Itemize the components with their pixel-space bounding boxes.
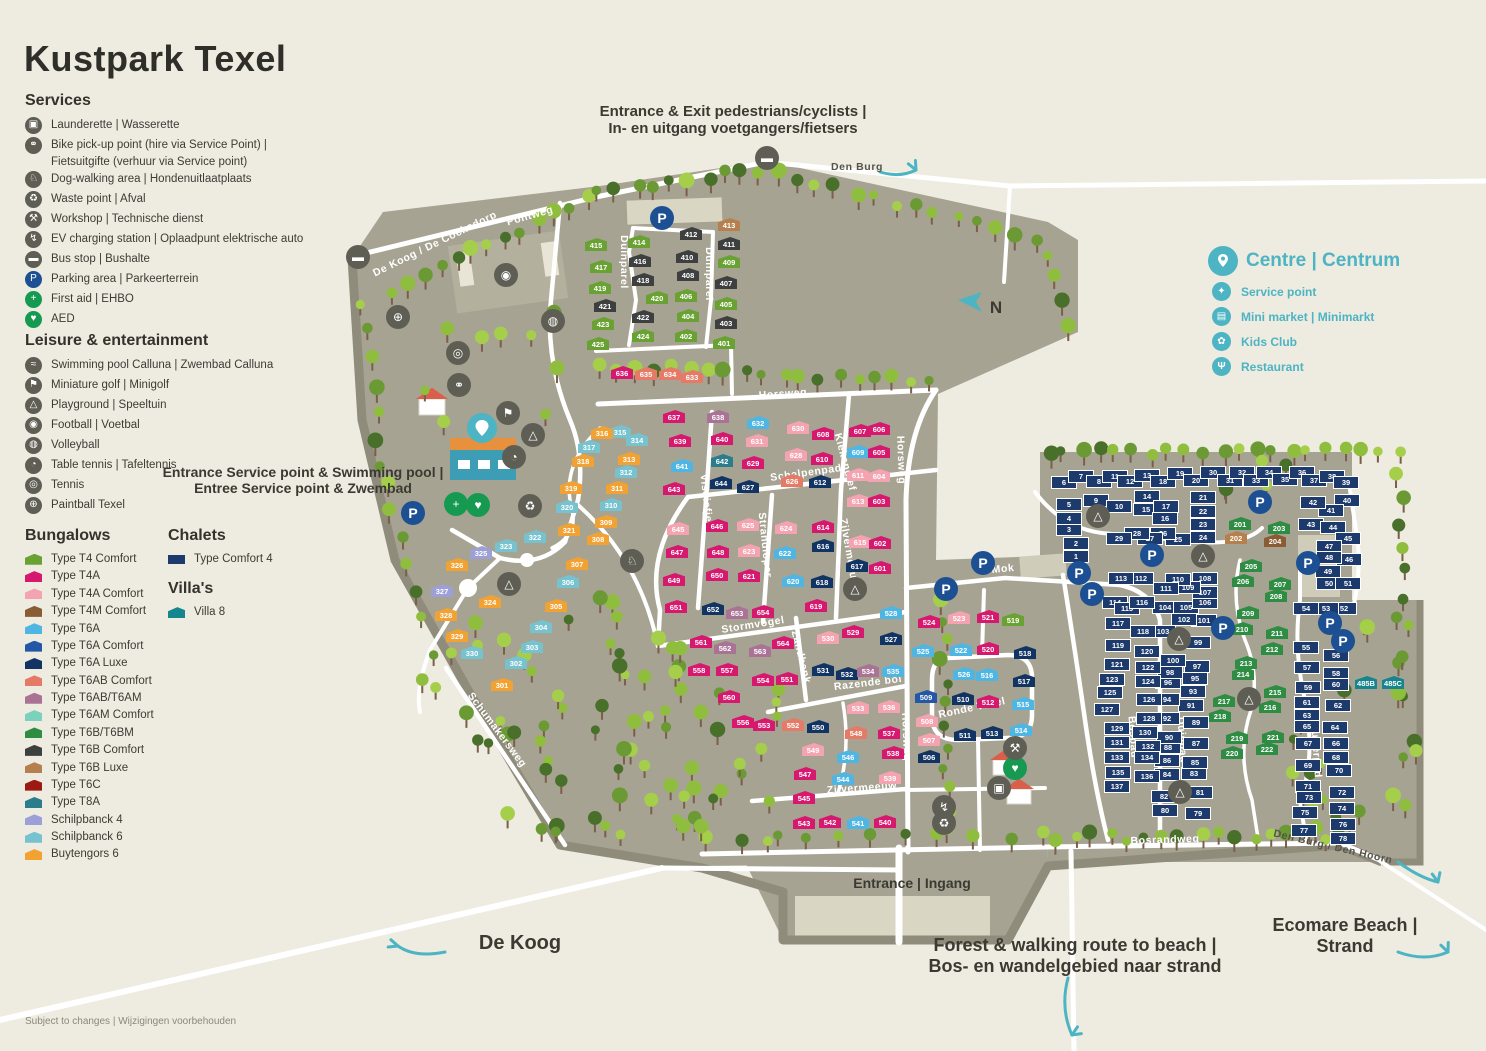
legend-bungalows-rows: Type T4 ComfortType T4AType T4A ComfortT…	[25, 552, 185, 862]
plot-29: 29	[1107, 533, 1131, 544]
legend-item-label: Type T6AM Comfort	[51, 708, 154, 722]
plot-117: 117	[1106, 618, 1130, 629]
type-swatch-o	[25, 849, 42, 860]
workshop-icon: ⚒	[25, 211, 42, 228]
legend-chalets: Chalets Type Comfort 4 Villa's Villa 8	[168, 527, 308, 623]
street-label-horsweg: Horsweg	[894, 436, 908, 485]
plot-65: 65	[1295, 721, 1319, 732]
plot-78: 78	[1331, 833, 1355, 844]
plot-55: 55	[1294, 642, 1318, 653]
legend-item: Type T4M Comfort	[25, 604, 185, 618]
table-tennis-icon: ◔	[25, 457, 42, 474]
plot-44: 44	[1321, 522, 1345, 533]
legend-item: Schilpbanck 6	[25, 830, 185, 844]
legend-item: ♥AED	[25, 311, 355, 328]
plot-129: 129	[1105, 723, 1129, 734]
legend-item-label: Type T6AB/T6AM	[51, 691, 142, 705]
legend-item-label: Schilpbanck 4	[51, 813, 123, 827]
plot-89: 89	[1184, 717, 1208, 728]
legend-item: Type T6A Luxe	[25, 656, 185, 670]
type-swatch-g	[25, 554, 42, 565]
plot-120: 120	[1135, 646, 1159, 657]
legend-item-label: Type T4M Comfort	[51, 604, 146, 618]
plot-125: 125	[1098, 687, 1122, 698]
legend-villas-rows: Villa 8	[168, 605, 308, 619]
plot-64: 64	[1323, 722, 1347, 733]
type-swatch-br	[25, 606, 42, 617]
parking-icon: P	[971, 551, 995, 575]
first-aid-icon: +	[444, 492, 468, 516]
plot-100: 100	[1161, 655, 1185, 666]
plot-123: 123	[1100, 674, 1124, 685]
entrance-servicepoint-label: Entrance Service point & Swimming pool |…	[163, 464, 444, 496]
plot-85: 85	[1183, 757, 1207, 768]
parking-icon: P	[401, 501, 425, 525]
legend-item-label: AED	[51, 312, 75, 326]
plot-59: 59	[1296, 682, 1320, 693]
legend-leisure-heading: Leisure & entertainment	[25, 332, 355, 350]
type-swatch-c	[168, 555, 185, 564]
plot-77: 77	[1292, 825, 1316, 836]
plot-60: 60	[1324, 679, 1348, 690]
legend-item-label: Bus stop | Bushalte	[51, 252, 150, 266]
plot-75: 75	[1293, 807, 1317, 818]
legend-item-label: Table tennis | Tafeltennis	[51, 458, 177, 472]
launderette-icon: ▣	[25, 117, 42, 134]
plot-24: 24	[1191, 532, 1215, 543]
legend-item-label: Volleyball	[51, 438, 100, 452]
street-label-bosrandweg: Bosrandweg	[1130, 833, 1199, 847]
type-swatch-rd	[25, 780, 42, 791]
plot-70: 70	[1327, 765, 1351, 776]
plot-83: 83	[1182, 768, 1206, 779]
legend-item-label: Miniature golf | Minigolf	[51, 378, 169, 392]
plot-57: 57	[1295, 662, 1319, 673]
restaurant-icon: Ψ	[1212, 357, 1231, 376]
plot-66: 66	[1324, 738, 1348, 749]
playground-icon: △	[521, 423, 545, 447]
plot-128: 128	[1137, 713, 1161, 724]
plot-69: 69	[1296, 760, 1320, 771]
plot-42: 42	[1301, 497, 1325, 508]
first-aid-icon: +	[25, 291, 42, 308]
playground-icon: △	[1237, 687, 1261, 711]
playground-icon: △	[843, 577, 867, 601]
street-label-duinparel: Duinparel	[703, 247, 715, 301]
playground-icon: △	[1191, 544, 1215, 568]
bike-pickup-icon: ⚭	[447, 373, 471, 397]
plot-3: 3	[1057, 524, 1081, 535]
plot-47: 47	[1317, 541, 1341, 552]
legend-item-label: Paintball Texel	[51, 498, 125, 512]
legend-item-label: Type T6A Luxe	[51, 656, 128, 670]
minigolf-icon: ⚑	[25, 377, 42, 394]
plot-90: 90	[1157, 732, 1181, 743]
plot-4: 4	[1057, 513, 1081, 524]
plot-71: 71	[1296, 781, 1320, 792]
plot-127: 127	[1095, 704, 1119, 715]
legend-item: Villa 8	[168, 605, 308, 619]
plot-113: 113	[1109, 573, 1133, 584]
plot-39: 39	[1334, 477, 1358, 488]
entrance-ingang-label: Entrance | Ingang	[853, 875, 971, 891]
legend-item: Type T6AM Comfort	[25, 708, 185, 722]
centre-legend-item: ✿Kids Club	[1212, 332, 1400, 351]
centre-legend-item: ▤Mini market | Minimarkt	[1212, 307, 1400, 326]
waste-point-icon: ♻	[518, 494, 542, 518]
swimming-pool-icon: ≈	[25, 357, 42, 374]
centre-legend-item: ✦Service point	[1212, 282, 1400, 301]
legend-item: Type T6AB/T6AM	[25, 691, 185, 705]
plot-116: 116	[1130, 597, 1154, 608]
paintball-icon: ⊕	[386, 305, 410, 329]
legend-item: Type Comfort 4	[168, 552, 308, 566]
parking-icon: P	[1248, 490, 1272, 514]
legend-item-label: Type T6C	[51, 778, 101, 792]
legend-item: +First aid | EHBO	[25, 291, 355, 308]
workshop-icon: ⚒	[1003, 736, 1027, 760]
street-label-den-burg: Den Burg	[831, 161, 883, 173]
legend-item-label: Type T8A	[51, 795, 100, 809]
plot-17: 17	[1154, 501, 1178, 512]
legend-services-heading: Services	[25, 92, 355, 110]
plot-97: 97	[1185, 661, 1209, 672]
bus-stop-icon: ▬	[755, 146, 779, 170]
mini-market-icon: ▤	[1212, 307, 1231, 326]
football-icon: ◉	[25, 417, 42, 434]
centre-legend-item-label: Service point	[1241, 285, 1316, 299]
plot-119: 119	[1106, 640, 1130, 651]
parking-icon: P	[1080, 582, 1104, 606]
legend-bungalows-heading: Bungalows	[25, 527, 185, 545]
legend-item-label: Swimming pool Calluna | Zwembad Calluna	[51, 358, 273, 372]
plot-136: 136	[1135, 771, 1159, 782]
plot-5: 5	[1057, 499, 1081, 510]
legend-item: ⊕Paintball Texel	[25, 497, 355, 514]
legend-item: ▬Bus stop | Bushalte	[25, 251, 355, 268]
centre-pin-icon	[1208, 246, 1238, 276]
playground-icon: △	[1168, 780, 1192, 804]
plot-133: 133	[1105, 752, 1129, 763]
legend-item: ♘Dog-walking area | Hondenuitlaatplaats	[25, 171, 355, 188]
plot-91: 91	[1179, 700, 1203, 711]
type-swatch-sa	[25, 675, 42, 686]
legend-services: Services ▣Launderette | Wasserette⚭Bike …	[25, 92, 355, 331]
entrance-exit-label: Entrance & Exit pedestrians/cyclists |In…	[600, 103, 867, 137]
legend-item: △Playground | Speeltuin	[25, 397, 355, 414]
legend-item-label: Waste point | Afval	[51, 192, 146, 206]
legend-chalets-heading: Chalets	[168, 527, 308, 545]
bike-pickup-icon: ⚭	[25, 137, 42, 154]
legend-item-label: Workshop | Technische dienst	[51, 212, 203, 226]
table-tennis-icon: ◔	[502, 445, 526, 469]
legend-item: Type T4A	[25, 569, 185, 583]
plot-21: 21	[1191, 492, 1215, 503]
kids-club-icon: ✿	[1212, 332, 1231, 351]
type-swatch-tq	[25, 710, 42, 721]
legend-item: Type T4A Comfort	[25, 587, 185, 601]
forest-route-label: Forest & walking route to beach |Bos- en…	[928, 935, 1221, 977]
legend-item-label: Type T6AB Comfort	[51, 674, 152, 688]
legend-item-label2: Fietsuitgifte (verhuur via Service point…	[51, 156, 355, 168]
centre-legend-item-label: Mini market | Minimarkt	[1241, 310, 1374, 324]
plot-118: 118	[1131, 626, 1155, 637]
type-swatch-gn	[25, 727, 42, 738]
legend-item: ♻Waste point | Afval	[25, 191, 355, 208]
legend-item: ▣Launderette | Wasserette	[25, 117, 355, 134]
plot-111: 111	[1154, 583, 1178, 594]
legend-item-label: Parking area | Parkeerterrein	[51, 272, 198, 286]
type-swatch-mv	[25, 693, 42, 704]
legend-item-label: Type T6A	[51, 622, 100, 636]
parking-icon: P	[650, 206, 674, 230]
plot-132: 132	[1136, 741, 1160, 752]
legend-item: Type T6C	[25, 778, 185, 792]
legend-item-label: Dog-walking area | Hondenuitlaatplaats	[51, 172, 252, 186]
plot-135: 135	[1106, 767, 1130, 778]
centre-legend-heading: Centre | Centrum	[1246, 250, 1400, 272]
parking-icon: P	[934, 577, 958, 601]
legend-item-label: Type T6B/T6BM	[51, 726, 134, 740]
legend-item-label: Type T4 Comfort	[51, 552, 136, 566]
plot-87: 87	[1184, 738, 1208, 749]
legend-item: Type T6AB Comfort	[25, 674, 185, 688]
minigolf-icon: ⚑	[496, 401, 520, 425]
type-swatch-s4	[25, 814, 42, 825]
football-icon: ◉	[494, 263, 518, 287]
legend-item-label: Football | Voetbal	[51, 418, 140, 432]
legend-item: Schilpbanck 4	[25, 813, 185, 827]
legend-item-label: EV charging station | Oplaadpunt elektri…	[51, 232, 303, 246]
playground-icon: △	[1167, 627, 1191, 651]
plot-79: 79	[1186, 808, 1210, 819]
legend-item: PParking area | Parkeerterrein	[25, 271, 355, 288]
legend-item-label: Type T4A Comfort	[51, 587, 143, 601]
legend-item: ⚒Workshop | Technische dienst	[25, 211, 355, 228]
parking-icon: P	[1067, 561, 1091, 585]
bus-stop-icon: ▬	[346, 245, 370, 269]
plot-130: 130	[1133, 727, 1157, 738]
parking-icon: P	[1211, 616, 1235, 640]
plot-2: 2	[1064, 538, 1088, 549]
de-koog-label: De Koog	[479, 932, 561, 955]
ev-charging-icon: ↯	[932, 795, 956, 819]
volleyball-icon: ◍	[541, 309, 565, 333]
park-map: Kustpark Texel Services ▣Launderette | W…	[0, 0, 1486, 1051]
legend-item: ⚭Bike pick-up point (hire via Service Po…	[25, 137, 355, 154]
plot-63: 63	[1295, 710, 1319, 721]
plot-102: 102	[1172, 614, 1196, 625]
type-swatch-p	[25, 588, 42, 599]
plot-134: 134	[1135, 752, 1159, 763]
bus-stop-icon: ▬	[25, 251, 42, 268]
plot-137: 137	[1105, 781, 1129, 792]
centre-legend-item-label: Kids Club	[1241, 335, 1297, 349]
legend-item: Buytengors 6	[25, 847, 185, 861]
dog-walking-icon: ♘	[25, 171, 42, 188]
legend-item-label: First aid | EHBO	[51, 292, 134, 306]
legend-item: Type T6B Luxe	[25, 761, 185, 775]
parking-icon: P	[1296, 551, 1320, 575]
centre-legend-item-label: Restaurant	[1241, 360, 1304, 374]
plot-72: 72	[1330, 787, 1354, 798]
legend-item-label: Villa 8	[194, 605, 225, 619]
legend-item: ≈Swimming pool Calluna | Zwembad Calluna	[25, 357, 355, 374]
parking-icon: P	[1140, 543, 1164, 567]
aed-icon: ♥	[25, 311, 42, 328]
type-swatch-tl	[25, 797, 42, 808]
type-swatch-m	[25, 571, 42, 582]
service-point-icon: ✦	[1212, 282, 1231, 301]
plot-51: 51	[1336, 578, 1360, 589]
plot-43: 43	[1299, 519, 1323, 530]
legend-item: Type T6A	[25, 622, 185, 636]
legend-item-label: Playground | Speeltuin	[51, 398, 167, 412]
north-label: N	[990, 298, 1002, 318]
tennis-icon: ◎	[446, 341, 470, 365]
legend-centre: Centre | Centrum ✦Service point▤Mini mar…	[1208, 246, 1400, 382]
legend-item: Type T6B Comfort	[25, 743, 185, 757]
centre-legend-item: ΨRestaurant	[1212, 357, 1400, 376]
legend-item: ◍Volleyball	[25, 437, 355, 454]
ev-charging-icon: ↯	[25, 231, 42, 248]
ecomare-label: Ecomare Beach |Strand	[1272, 915, 1417, 957]
launderette-icon: ▣	[987, 776, 1011, 800]
type-swatch-nv	[25, 658, 42, 669]
playground-icon: △	[25, 397, 42, 414]
type-swatch-tn	[25, 762, 42, 773]
legend-item: Type T6A Comfort	[25, 639, 185, 653]
type-swatch-b	[25, 641, 42, 652]
legend-services-rows: ▣Launderette | Wasserette⚭Bike pick-up p…	[25, 117, 355, 328]
volleyball-icon: ◍	[25, 437, 42, 454]
legend-item-label: Type T4A	[51, 569, 100, 583]
legend-item-label: Type T6B Comfort	[51, 743, 144, 757]
legend-item-label: Launderette | Wasserette	[51, 118, 180, 132]
aed-icon: ♥	[466, 493, 490, 517]
type-swatch-v	[168, 607, 185, 618]
plot-98: 98	[1158, 667, 1182, 678]
plot-73: 73	[1297, 792, 1321, 803]
plot-131: 131	[1105, 737, 1129, 748]
type-swatch-s6	[25, 832, 42, 843]
plot-62: 62	[1326, 700, 1350, 711]
playground-icon: △	[497, 572, 521, 596]
plot-80: 80	[1153, 805, 1177, 816]
plot-16: 16	[1153, 513, 1177, 524]
waste-point-icon: ♻	[25, 191, 42, 208]
plot-22: 22	[1191, 506, 1215, 517]
plot-106: 106	[1193, 597, 1217, 608]
legend-item-label: Buytengors 6	[51, 847, 119, 861]
playground-icon: △	[1086, 504, 1110, 528]
legend-centre-rows: ✦Service point▤Mini market | Minimarkt✿K…	[1208, 282, 1400, 376]
legend-item: Type T8A	[25, 795, 185, 809]
legend-item-label: Schilpbanck 6	[51, 830, 123, 844]
legend-item-label: Bike pick-up point (hire via Service Poi…	[51, 138, 267, 152]
legend-chalets-rows: Type Comfort 4	[168, 552, 308, 566]
dog-walking-icon: ♘	[620, 549, 644, 573]
plot-48: 48	[1317, 552, 1341, 563]
plot-54: 54	[1294, 603, 1318, 614]
page-title: Kustpark Texel	[24, 38, 286, 80]
legend-item-label: Tennis	[51, 478, 84, 492]
legend-bungalows: Bungalows Type T4 ComfortType T4AType T4…	[25, 527, 185, 865]
legend-item: ◉Football | Voetbal	[25, 417, 355, 434]
type-swatch-lb	[25, 623, 42, 634]
plot-124: 124	[1136, 676, 1160, 687]
plot-121: 121	[1105, 659, 1129, 670]
legend-item-label: Type T6B Luxe	[51, 761, 128, 775]
parking-icon: P	[25, 271, 42, 288]
legend-item: ↯EV charging station | Oplaadpunt elektr…	[25, 231, 355, 248]
plot-74: 74	[1330, 803, 1354, 814]
paintball-icon: ⊕	[25, 497, 42, 514]
plot-95: 95	[1183, 673, 1207, 684]
plot-126: 126	[1137, 694, 1161, 705]
plot-67: 67	[1296, 738, 1320, 749]
plot-93: 93	[1181, 686, 1205, 697]
footnote: Subject to changes | Wijzigingen voorbeh…	[25, 1016, 236, 1027]
plot-10: 10	[1107, 501, 1131, 512]
plot-76: 76	[1331, 819, 1355, 830]
legend-item: ⚑Miniature golf | Minigolf	[25, 377, 355, 394]
type-swatch-dk	[25, 745, 42, 756]
parking-icon: P	[1331, 629, 1355, 653]
plot-122: 122	[1136, 662, 1160, 673]
plot-58: 58	[1324, 668, 1348, 679]
plot-23: 23	[1191, 519, 1215, 530]
legend-item: Type T4 Comfort	[25, 552, 185, 566]
plot-49: 49	[1316, 566, 1340, 577]
legend-item-label: Type Comfort 4	[194, 552, 273, 566]
legend-item-label: Type T6A Comfort	[51, 639, 143, 653]
legend-item: Type T6B/T6BM	[25, 726, 185, 740]
plot-68: 68	[1324, 752, 1348, 763]
plot-61: 61	[1295, 697, 1319, 708]
tennis-icon: ◎	[25, 477, 42, 494]
legend-villas-heading: Villa's	[168, 580, 308, 598]
